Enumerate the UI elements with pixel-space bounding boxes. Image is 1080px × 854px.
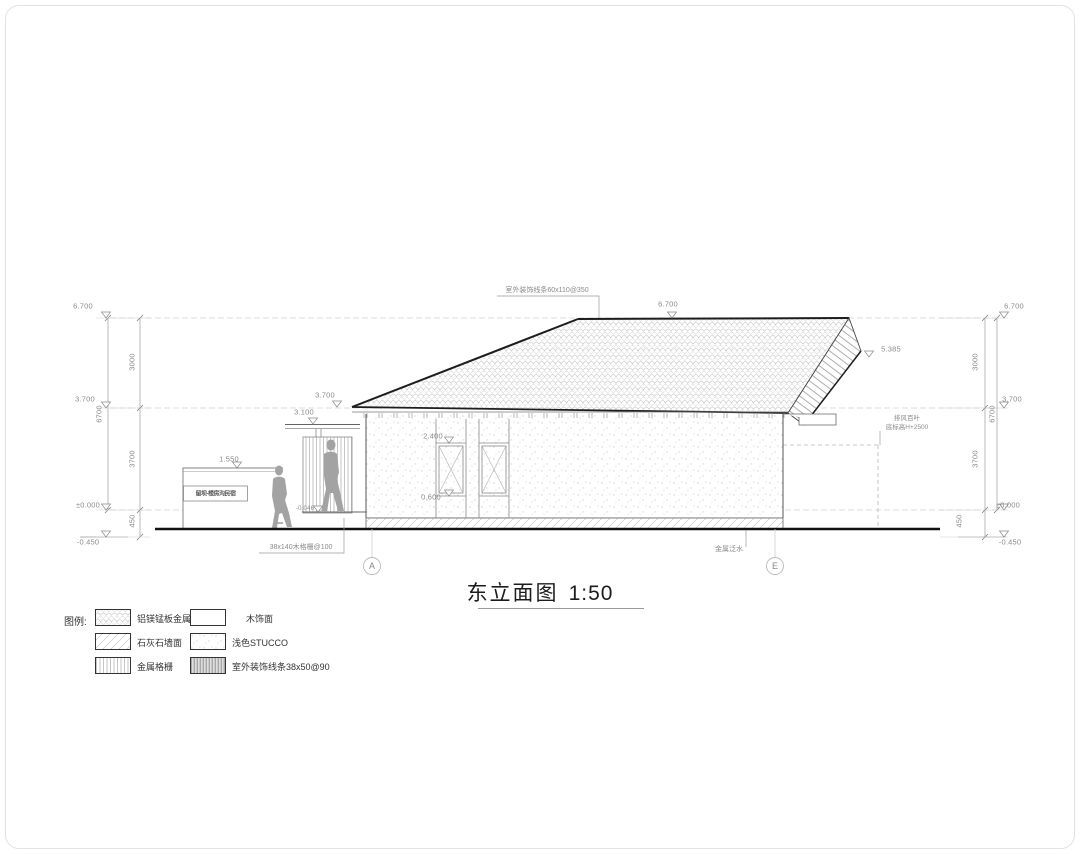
grid-bubble-a: A xyxy=(369,561,375,571)
marker-ridge: 6.700 xyxy=(658,300,678,309)
rafter-ticks xyxy=(354,412,786,418)
marker-window-head: 2.400 xyxy=(423,432,443,441)
level-label-mid-left: 3.700 xyxy=(75,395,95,404)
stucco-wall xyxy=(366,413,783,518)
legend-label: 石灰石墙面 xyxy=(137,636,182,649)
dim-seg-mid-left: 3700 xyxy=(128,450,137,468)
limestone-swatch xyxy=(95,633,131,650)
marker-window-sill: 0.600 xyxy=(421,493,441,502)
dim-seg-bottom-left: 450 xyxy=(128,514,137,527)
marker-left-eave: 3.700 xyxy=(315,391,335,400)
stucco-swatch xyxy=(190,633,226,650)
dim-overall-left: 6700 xyxy=(95,405,104,423)
level-label-zero-right: ±0.000 xyxy=(996,501,1020,510)
roof xyxy=(352,318,861,425)
dim-seg-top-left: 3000 xyxy=(128,353,137,371)
title-underline xyxy=(478,608,644,609)
dim-seg-bottom-right: 450 xyxy=(955,514,964,527)
louver-annotation-line2: 底标高H+2500 xyxy=(886,421,928,431)
level-label-ground-right: -0.450 xyxy=(999,538,1021,547)
level-label-ground-left: -0.450 xyxy=(77,538,99,547)
level-label-top-right: 6.700 xyxy=(1004,302,1024,311)
legend-title: 图例: xyxy=(64,613,87,628)
level-label-top-left: 6.700 xyxy=(73,302,93,311)
marker-sign-wall: 1.550 xyxy=(219,455,239,464)
metal-tile-roof-face xyxy=(352,318,849,413)
legend-label: 金属格栅 xyxy=(137,660,173,673)
dim-seg-mid-right: 3700 xyxy=(971,450,980,468)
metal-flashing-annotation: 金属泛水 xyxy=(715,544,743,554)
marker-canopy: 3.100 xyxy=(294,408,314,417)
level-label-zero-left: ±0.000 xyxy=(76,501,100,510)
legend-label: 室外装饰线条38x50@90 xyxy=(232,660,330,673)
dim-overall-right: 6700 xyxy=(988,405,997,423)
plinth xyxy=(366,518,783,529)
marker-entry-step: -0.046 xyxy=(296,506,314,512)
title-scale: 1:50 xyxy=(569,582,614,605)
entrance-sign-text: 留坝·楼房沟民宿 xyxy=(196,489,236,498)
roof-trim-annotation: 室外装饰线条60x110@350 xyxy=(505,285,588,295)
hidden-louver-outline xyxy=(783,445,878,528)
wood-grille-annotation: 38x140木格栅@100 xyxy=(270,542,333,552)
level-label-mid-right: 3.700 xyxy=(1002,395,1022,404)
exterior-trim-swatch xyxy=(190,657,226,674)
marker-right-eave: 5.385 xyxy=(881,345,901,354)
drawing-title: 东立面图1:50 xyxy=(467,577,614,607)
legend-label: 木饰面 xyxy=(246,612,273,625)
dim-seg-top-right: 3000 xyxy=(971,353,980,371)
title-text: 东立面图 xyxy=(467,582,559,605)
grid-bubble-e: E xyxy=(772,561,778,571)
wood-finish-swatch xyxy=(190,609,226,626)
metal-tile-swatch xyxy=(95,609,131,626)
legend-label: 浅色STUCCO xyxy=(232,636,288,649)
metal-grille-swatch xyxy=(95,657,131,674)
drawing-sheet: 6.700 3.700 ±0.000 -0.450 6.700 3.700 ±0… xyxy=(0,0,1080,854)
